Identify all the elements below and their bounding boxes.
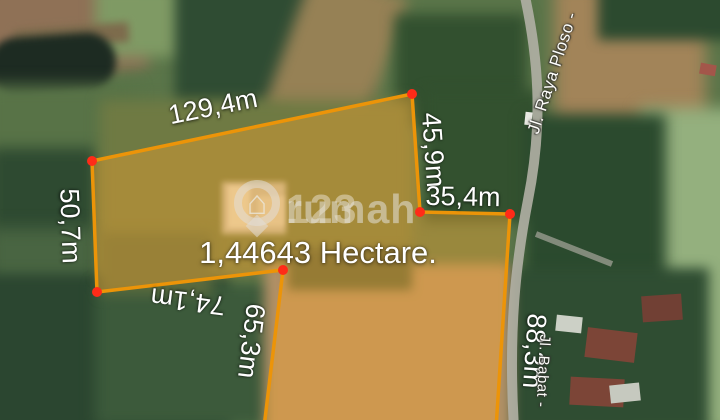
parcel-area-label: 1,44643 Hectare.	[199, 235, 437, 271]
road-branch	[536, 234, 612, 264]
vertex-dot	[415, 207, 425, 217]
houses	[555, 63, 717, 408]
map-canvas[interactable]: ⌂ rumah123 129,4m 45,9m 35,4m 50,7m 74,1…	[0, 0, 720, 420]
house-pin-icon: ⌂	[234, 180, 280, 238]
vertex-dot	[407, 89, 417, 99]
vertex-dot	[87, 156, 97, 166]
measurement-left-edge: 50,7m	[53, 188, 87, 264]
vertex-dot	[505, 209, 515, 219]
measurement-upper-right-edge: 45,9m	[415, 111, 451, 188]
brand-watermark: ⌂ rumah123	[234, 180, 357, 238]
brand-name: rumah123	[286, 186, 357, 233]
measurement-step-edge: 35,4m	[425, 181, 501, 213]
vertex-dot	[92, 287, 102, 297]
